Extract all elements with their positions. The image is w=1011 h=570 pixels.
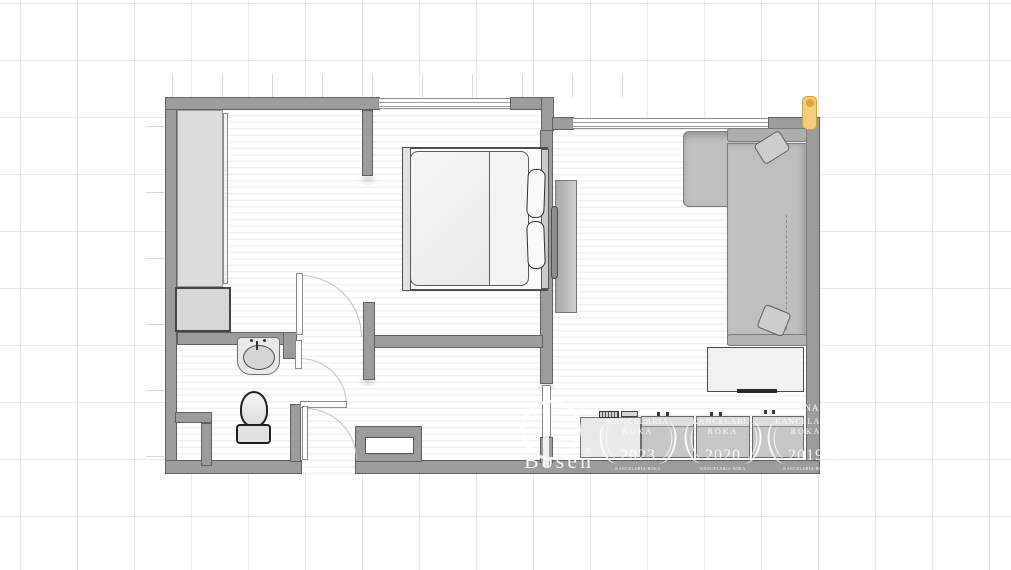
bedroom-window (378, 98, 512, 109)
wall-step-horizontal (552, 117, 574, 130)
sink-basin (243, 345, 275, 370)
ruler-ticks-top (172, 74, 642, 98)
stamp-footer: KANCELARIA ROKA (760, 467, 852, 471)
sofa-armrest-bottom (727, 334, 807, 346)
tv-screen (551, 206, 558, 279)
stamp-footer: KANCELARIA ROKA (677, 467, 769, 471)
coffee-table-handle (737, 389, 777, 393)
bosen-watermark-text: Bosen (524, 448, 594, 474)
bathroom-niche-wall-v (201, 423, 212, 466)
coffee-table (707, 347, 804, 392)
partition-dressing-bedroom (362, 110, 373, 176)
outer-wall-bottom-left (165, 460, 302, 474)
bed-pillow (526, 221, 546, 270)
faucet-spout (256, 341, 258, 350)
tv-media-panel (555, 180, 577, 313)
hall-wall-stub (363, 302, 375, 380)
service-shaft (355, 426, 422, 462)
service-shaft-opening (365, 437, 414, 454)
bathroom-right-wall-lower (290, 404, 301, 462)
bedroom-door-leaf (296, 273, 303, 335)
bed-duvet-fold (489, 151, 529, 286)
wardrobe (177, 110, 223, 287)
stamp-org-line2: ROKA (760, 428, 852, 436)
faucet-handle-right (263, 339, 266, 342)
outer-wall-top-left (165, 97, 380, 110)
bathroom-niche-wall-h (175, 412, 212, 423)
watermark-stamp-2023: KANCELARIA ROKA 2023 KANCELARIA ROKA (592, 406, 684, 476)
dresser (175, 287, 231, 332)
faucet-handle-left (250, 339, 253, 342)
stamp-year: 2020 (677, 448, 769, 464)
toilet-bowl (240, 391, 268, 427)
ruler-ticks-left (146, 126, 164, 476)
stamp-org-line2: ROKA (592, 428, 684, 436)
stamp-footer: KANCELARIA ROKA (592, 467, 684, 471)
entrance-door-leaf (302, 406, 308, 460)
stamp-year: 2019 (760, 448, 852, 464)
toilet-tank (236, 424, 271, 444)
stamp-org-line1: KANCELARIA (760, 418, 852, 426)
bedroom-bottom-wall (363, 335, 543, 348)
stamp-org-line1: KANCELARIA (592, 418, 684, 426)
bathroom-door-leaf-closed (295, 340, 302, 369)
floor-plan-canvas: Bosen ® TNA KANCELARIA ROKA 2023 KANCELA… (0, 0, 1011, 570)
column-marker-dot (806, 99, 814, 107)
wardrobe-sliding-front (223, 113, 228, 284)
bed-pillow (526, 169, 546, 219)
stamp-org-line2: ROKA (677, 428, 769, 436)
watermark-stamp-2020: KANCELARIA ROKA 2020 KANCELARIA ROKA (677, 406, 769, 476)
watermark-stamp-2019: KANCELARIA ROKA 2019 KANCELARIA ROKA (760, 406, 852, 476)
stamp-org-line1: KANCELARIA (677, 418, 769, 426)
stamp-year: 2023 (592, 448, 684, 464)
bosen-registered-mark: ® (585, 447, 590, 455)
